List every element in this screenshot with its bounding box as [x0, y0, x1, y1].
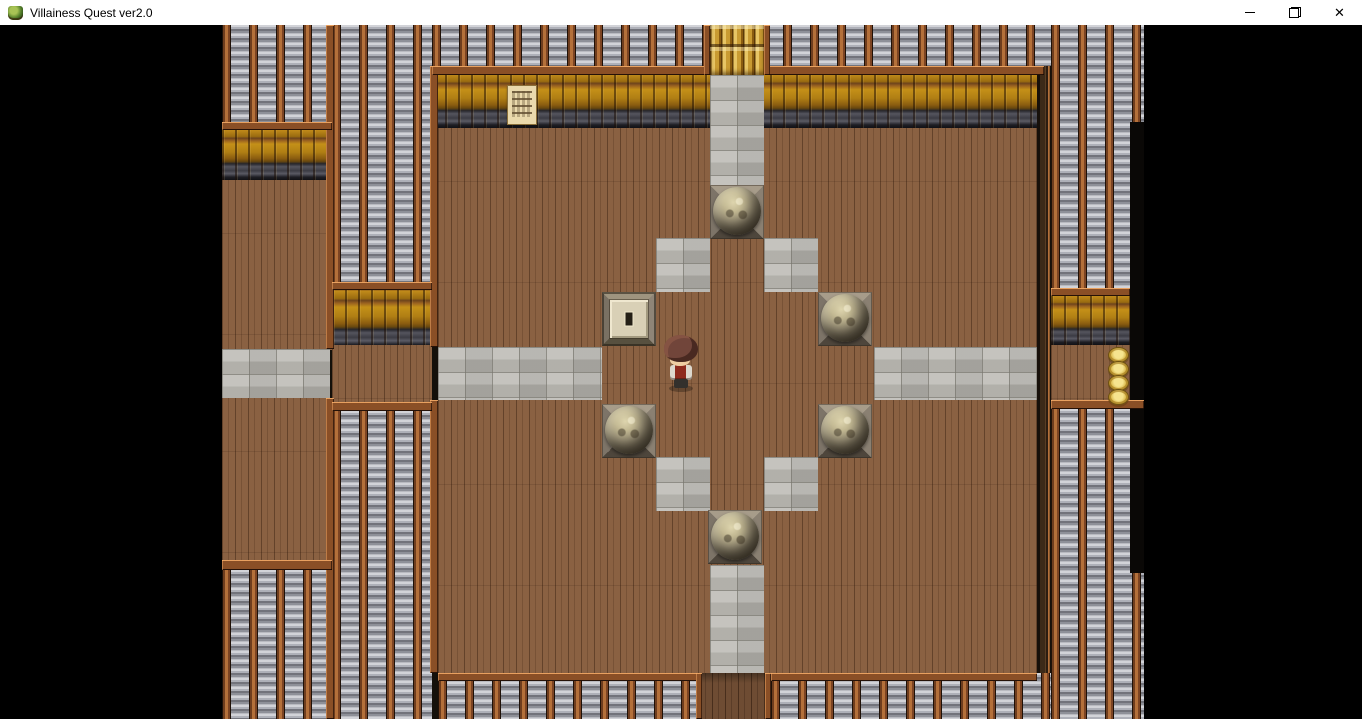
restore-icon — [1289, 7, 1301, 18]
boulder-rock-icon — [711, 512, 759, 560]
log-pile-icon — [710, 25, 764, 75]
wall-panel — [222, 122, 332, 180]
wood-floor — [222, 180, 332, 350]
roof-tiles — [432, 25, 1144, 66]
player-character[interactable] — [662, 335, 700, 393]
boulder[interactable] — [710, 185, 764, 239]
roof-frame — [765, 673, 771, 719]
character-legs — [674, 379, 688, 388]
app-icon — [8, 6, 23, 20]
roof-frame — [332, 402, 432, 411]
boulder-rock-icon — [713, 187, 761, 235]
window-controls: ✕ — [1227, 0, 1362, 25]
corridor-floor — [699, 673, 771, 719]
close-button[interactable]: ✕ — [1317, 0, 1362, 25]
character-hair — [664, 335, 698, 362]
stone-path — [656, 238, 710, 292]
east-wall — [1037, 66, 1051, 673]
roof-frame — [1051, 400, 1144, 409]
boulder[interactable] — [818, 404, 872, 458]
roof-frame — [771, 673, 1037, 681]
roof-tiles — [332, 25, 432, 282]
roof-frame — [438, 673, 699, 681]
shadow-strip — [1130, 122, 1144, 573]
restore-button[interactable] — [1272, 0, 1317, 25]
switch-slot-icon — [625, 312, 634, 327]
minimize-icon — [1245, 12, 1255, 13]
stone-path — [438, 347, 602, 400]
roof-frame — [222, 122, 332, 130]
stone-path — [710, 75, 764, 185]
wood-floor — [222, 398, 332, 560]
stone-path — [710, 565, 764, 673]
character-body — [670, 365, 692, 380]
roof-frame — [430, 66, 438, 347]
boulder-rock-icon — [605, 406, 653, 454]
boulder[interactable] — [602, 404, 656, 458]
stone-path — [874, 347, 1037, 400]
sign-text-lines — [512, 91, 532, 117]
wall-panel — [1051, 288, 1130, 345]
roof-tiles — [332, 402, 432, 719]
stone-path — [764, 238, 818, 292]
sign-poster[interactable] — [507, 85, 537, 125]
roof-frame — [764, 25, 770, 75]
stone-path — [222, 349, 330, 398]
wall-panel — [332, 282, 432, 348]
boulder-rock-icon — [821, 294, 869, 342]
close-icon: ✕ — [1334, 6, 1345, 19]
boulder-rock-icon — [821, 406, 869, 454]
roof-frame — [432, 66, 710, 75]
boulder[interactable] — [708, 510, 762, 564]
roof-tiles — [222, 25, 332, 122]
roof-frame — [326, 25, 334, 349]
minimize-button[interactable] — [1227, 0, 1272, 25]
gold-coin-icon[interactable] — [1108, 389, 1129, 405]
roof-frame — [1051, 288, 1130, 296]
stone-path — [764, 457, 818, 511]
roof-frame — [764, 66, 1044, 75]
wood-floor — [332, 345, 432, 402]
roof-tiles — [222, 570, 332, 719]
game-viewport[interactable] — [222, 25, 1144, 719]
roof-frame — [326, 398, 334, 719]
stone-path — [656, 457, 710, 511]
roof-frame — [430, 400, 438, 673]
roof-frame — [222, 560, 332, 570]
roof-frame — [332, 282, 432, 290]
boulder[interactable] — [818, 292, 872, 346]
roof-frame — [696, 673, 702, 719]
window-title-bar[interactable]: Villainess Quest ver2.0 ✕ — [0, 0, 1362, 25]
window-title: Villainess Quest ver2.0 — [30, 6, 153, 20]
floor-switch[interactable] — [602, 292, 656, 346]
